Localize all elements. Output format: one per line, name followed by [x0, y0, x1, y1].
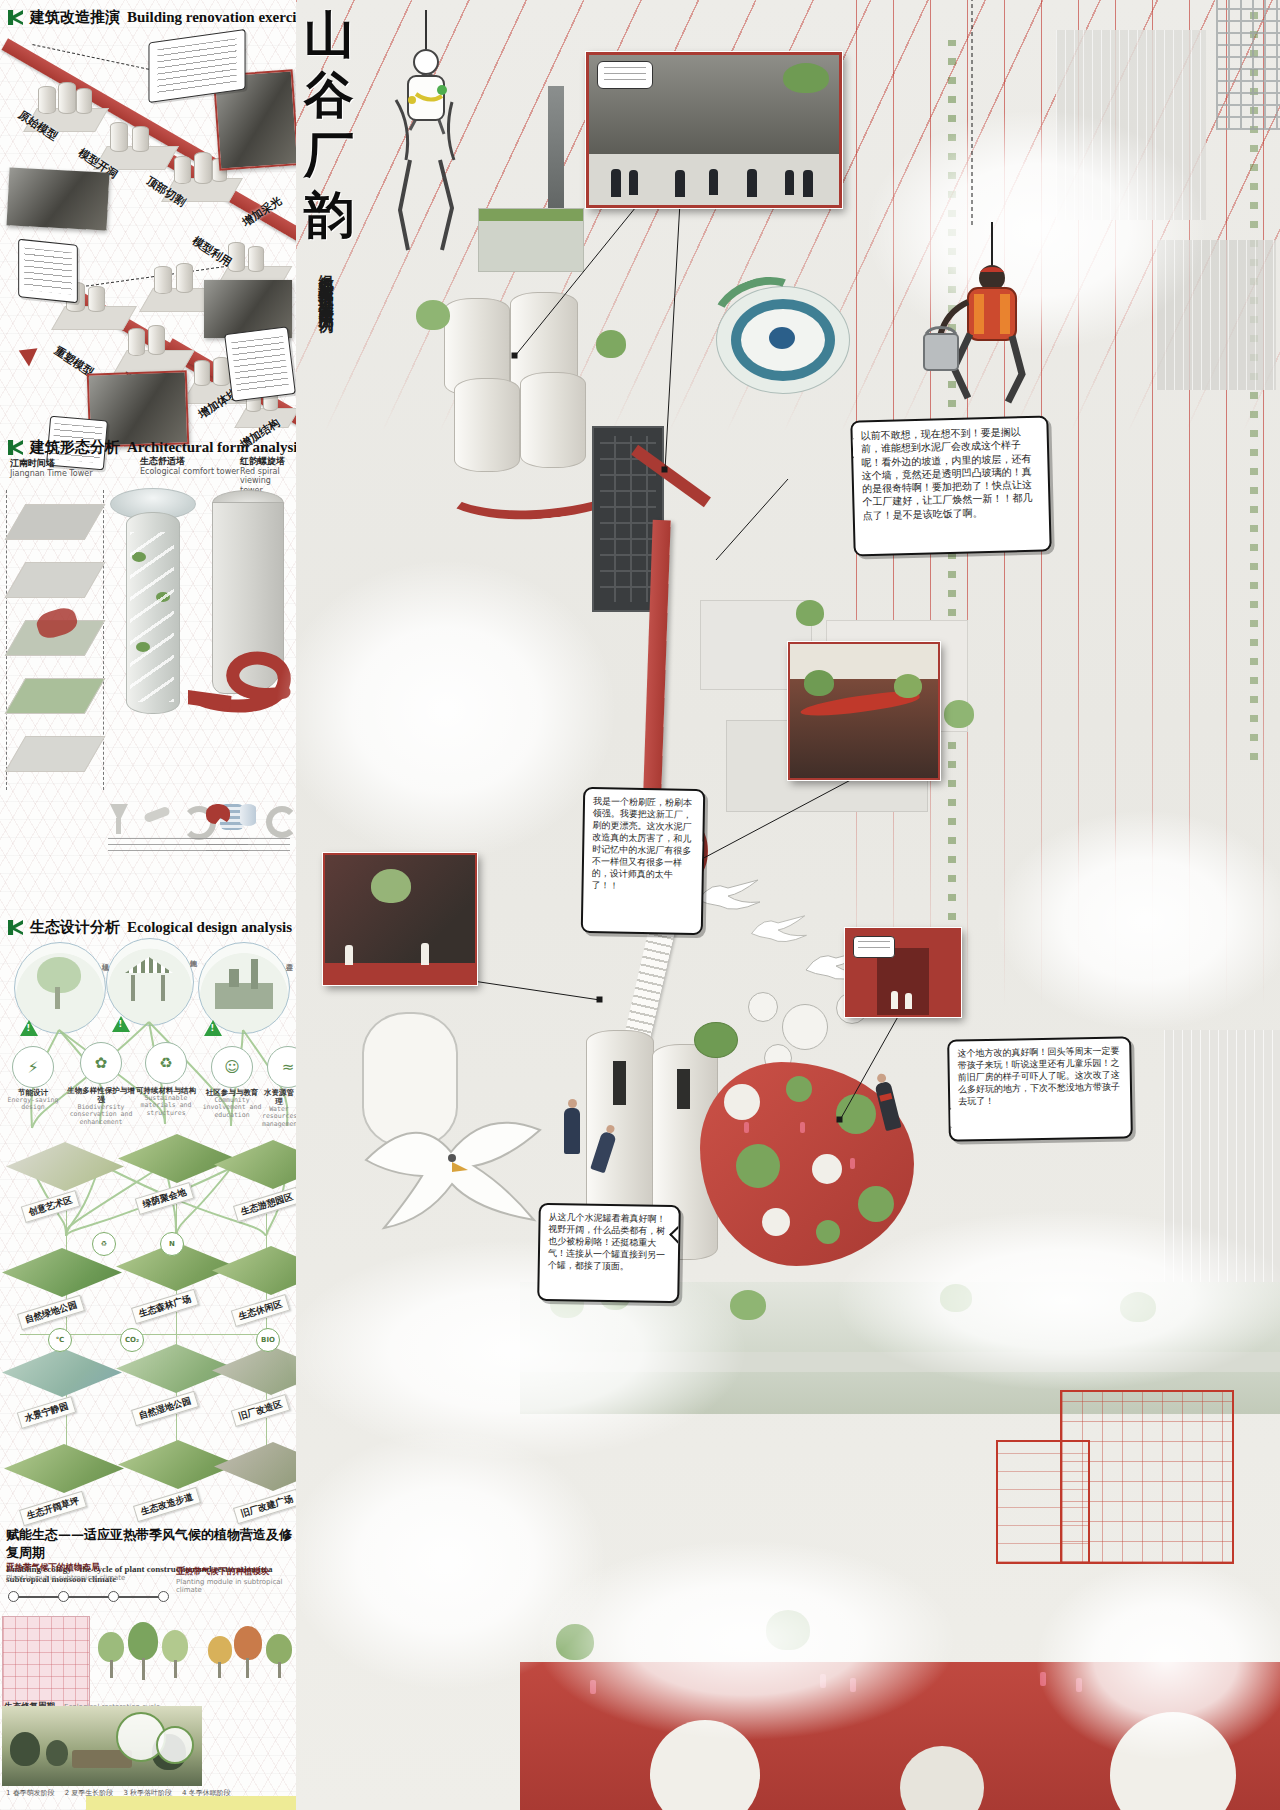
poster-subtitle-vertical: 绿色焕新旧址城市改造计划丨以南京江南水泥厂为例 — [316, 262, 335, 722]
title-char: 山 — [304, 10, 360, 60]
badge-recycle: ♻ — [92, 1232, 116, 1256]
inset-courtyard-view — [788, 642, 940, 780]
cycle-diagram-circle — [156, 1726, 194, 1764]
title-char: 谷 — [304, 70, 360, 120]
section1-title-zh: 建筑改造推演 — [30, 8, 120, 27]
form-analysis-diagram: 江南时间塔Jiangnan Time Tower 生态舒适塔Ecological… — [0, 456, 296, 916]
tower1-stacked-plates — [6, 490, 104, 790]
plant-layout-trees — [96, 1614, 206, 1684]
section-form-header: 建筑形态分析 Architectural form analysis — [8, 438, 303, 457]
inset-red-tunnel-view — [845, 928, 961, 1017]
tower2-funnel-cylinder — [108, 482, 196, 792]
section3-title-en: Ecological design analysis — [127, 919, 292, 936]
inset-gallery-view — [586, 52, 842, 208]
node-energy-label: 节能设计Energy-saving design — [2, 1088, 64, 1112]
section-eco-header: 生态设计分析 Ecological design analysis — [8, 918, 292, 937]
historic-photo — [7, 167, 110, 230]
section1-title-en: Building renovation exercise — [127, 9, 309, 26]
title-char: 厂 — [304, 130, 360, 180]
scene-circle-pavilion — [106, 938, 194, 1026]
plant-timeline — [8, 1596, 168, 1598]
section3-title-zh: 生态设计分析 — [30, 918, 120, 937]
renovation-flow-diagram: 原始模型 模型开洞 顶部切割 增加采光 模型利用 重塑模型 顶部通透 增加体块 … — [0, 28, 296, 430]
node-materials-label: 可持续材料与结构Sustainable materials and struct… — [132, 1086, 200, 1117]
badge-co2: CO₂ — [120, 1328, 144, 1352]
node-biodiversity-icon: ✿ — [80, 1042, 122, 1084]
cloud — [536, 1540, 956, 1740]
node-energy-icon: ⚡ — [12, 1046, 54, 1088]
tower1-label: 江南时间塔Jiangnan Time Tower — [10, 458, 93, 478]
left-analysis-column: 建筑改造推演 Building renovation exercise 原始模型 — [0, 0, 296, 1810]
node-materials-icon: ♻ — [145, 1042, 187, 1084]
badge-n: N — [160, 1232, 184, 1256]
yellow-footer-bar — [86, 1796, 296, 1810]
annotation-note — [224, 326, 296, 401]
section4-title-zh: 赋能生态——适应亚热带季风气候的植物营造及修复周期 — [6, 1526, 292, 1562]
painter-worker-illustration — [908, 222, 1048, 442]
annotation-note — [18, 239, 78, 304]
studio-logo-icon — [8, 920, 23, 935]
sub-right-header: 亚热带气候下的种植模块 Planting module in subtropic… — [176, 1566, 296, 1594]
poster-title-vertical: 山 谷 厂 韵 — [304, 10, 360, 240]
speech-bubble-2: 我是一个粉刷匠，粉刷本领强。我要把这新工厂，刷的更漂亮。这次水泥厂改造真的太厉害… — [581, 787, 706, 935]
node-water-label: 水资源管理Water resources management — [262, 1088, 296, 1128]
inset-red-interior-view — [323, 853, 477, 985]
tile-label: 自然湿地公园 — [131, 1391, 199, 1427]
node-community-label: 社区参与与教育Community involvement and educati… — [200, 1088, 264, 1119]
speech-bubble-3: 这个地方改的真好啊！回头等周末一定要带孩子来玩！听说这里还有儿童乐园！之前旧厂房… — [947, 1036, 1133, 1141]
tile-label: 水景宁静园 — [17, 1396, 76, 1429]
tile-label: 旧厂改造区 — [231, 1394, 290, 1427]
badge-temp: ℃ — [48, 1328, 72, 1352]
climber-illustration — [356, 10, 486, 265]
planting-modules — [208, 1614, 296, 1694]
section2-title-en: Architectural form analysis — [127, 439, 303, 456]
node-biodiversity-label: 生物多样性保护与增强Biodiversity conservation and … — [64, 1086, 138, 1126]
red-frame-structure — [996, 1440, 1090, 1564]
main-render-panel: 山 谷 厂 韵 绿色焕新旧址城市改造计划丨以南京江南水泥厂为例 — [296, 0, 1280, 1810]
section-renovation-header: 建筑改造推演 Building renovation exercise — [8, 8, 309, 27]
cloud — [1036, 1560, 1280, 1760]
studio-logo-icon — [8, 440, 23, 455]
studio-logo-icon — [8, 10, 23, 25]
tile-label: 自然绿地公园 — [17, 1295, 85, 1331]
tower2-label: 生态舒适塔Ecological comfort tower — [140, 456, 239, 476]
node-community-icon: ☺ — [211, 1046, 253, 1088]
eco-analysis-diagram: ! ! ! 绿地现状 休闲设施 工业遗存 ⚡ ✿ — [0, 936, 296, 1526]
tile-label: 生态开阔草坪 — [19, 1491, 87, 1527]
speech-bubble-1: 以前不敢想，现在想不到！要是搁以前，谁能想到水泥厂会改成这个样子呢！看外边的坡道… — [850, 415, 1051, 556]
poster-board: 建筑改造推演 Building renovation exercise 原始模型 — [0, 0, 1280, 1810]
sub-left-header: 亚热带气候下的植物布局 Plant layout in subtropical … — [6, 1562, 136, 1582]
section2-title-zh: 建筑形态分析 — [30, 438, 120, 457]
tile-label: 生态改造步道 — [133, 1487, 201, 1523]
tile-label: 生态休闲区 — [231, 1294, 290, 1327]
flow-arrow — [15, 342, 38, 367]
title-char: 韵 — [304, 190, 360, 240]
badge-bio: BIO — [256, 1328, 280, 1352]
tile-label: 生态森林广场 — [131, 1289, 199, 1325]
speech-bubble-4: 从这几个水泥罐看着真好啊！视野开阔，什么品类都有，树也少被粉刷咯！还挺稳重大气！… — [537, 1203, 681, 1303]
